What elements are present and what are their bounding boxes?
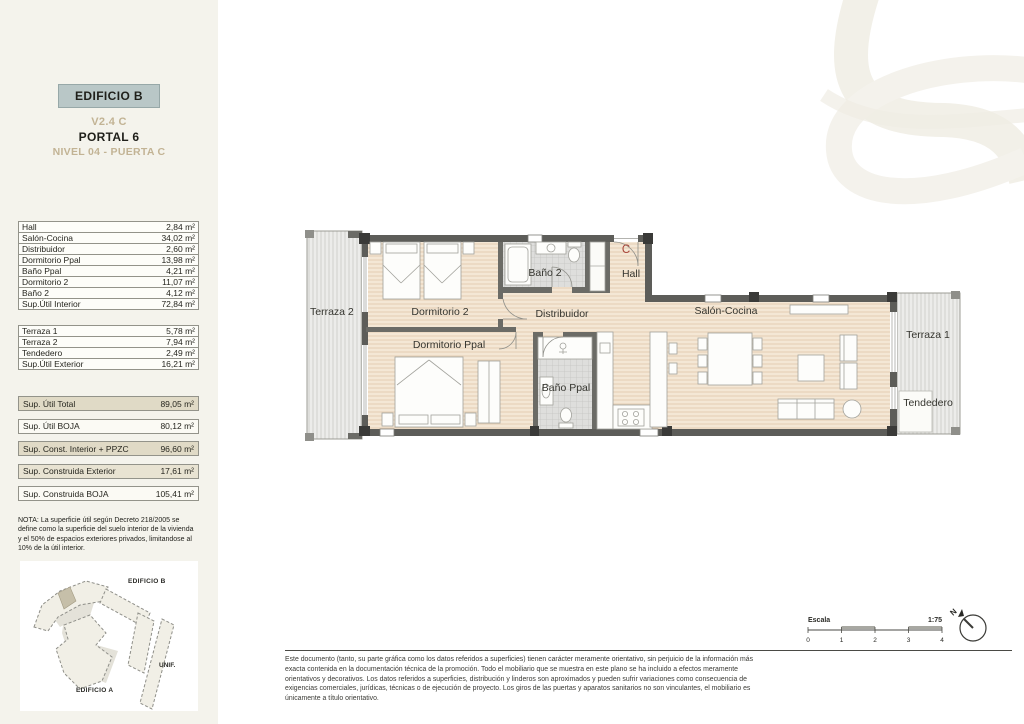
- scale-segment: [842, 626, 876, 629]
- sofa: [778, 399, 834, 419]
- row-label: Baño 2: [22, 288, 49, 299]
- disclaimer-block: Este documento (tanto, su parte gráfica …: [285, 650, 1012, 704]
- row-label: Dormitorio Ppal: [22, 255, 81, 266]
- tick-3: 3: [907, 637, 911, 644]
- summary-areas: Sup. Útil Total89,05 m² Sup. Útil BOJA80…: [18, 396, 199, 509]
- row-value: 96,60 m²: [160, 444, 194, 454]
- row-value: 17,61 m²: [160, 466, 194, 476]
- scale-bar-drawing: Escala 1:75 0 1 2 3 4 N: [795, 604, 1005, 650]
- row-value: 13,98 m²: [161, 255, 195, 266]
- row-label: Terraza 2: [22, 337, 57, 348]
- label-distribuidor: Distribuidor: [535, 308, 589, 320]
- exterior-areas-table: Terraza 15,78 m² Terraza 27,94 m² Tended…: [18, 325, 199, 370]
- unit-header: EDIFICIO B V2.4 C PORTAL 6 NIVEL 04 - PU…: [0, 84, 218, 158]
- summary-row: Sup. Construida Exterior17,61 m²: [18, 464, 199, 479]
- row-label: Sup. Construida Exterior: [23, 466, 116, 476]
- row-label: Salón-Cocina: [22, 233, 73, 244]
- dining-table: [708, 333, 752, 385]
- scale-segment: [909, 626, 943, 629]
- north-arrow-icon: N: [948, 607, 986, 641]
- label-hall: Hall: [622, 268, 640, 280]
- label-terraza1: Terraza 1: [906, 329, 950, 341]
- label-bano2: Baño 2: [528, 267, 561, 279]
- row-value: 89,05 m²: [160, 399, 194, 409]
- sideboard: [790, 305, 848, 314]
- decree-note: NOTA: La superficie útil según Decreto 2…: [18, 516, 196, 554]
- kitchen-island: [650, 332, 667, 427]
- tick-4: 4: [940, 637, 944, 644]
- table-row: Sup.Útil Interior72,84 m²: [18, 298, 199, 310]
- label-door-letter: C: [622, 244, 630, 256]
- row-value: 5,78 m²: [166, 326, 195, 337]
- site-plan: EDIFICIO B UNIF. EDIFICIO A: [20, 561, 198, 711]
- site-label-edificio-b: EDIFICIO B: [128, 578, 166, 585]
- tick-2: 2: [873, 637, 877, 644]
- row-value: 7,94 m²: [166, 337, 195, 348]
- label-terraza2: Terraza 2: [310, 306, 354, 318]
- scale-label: Escala: [808, 617, 830, 624]
- terraza-1-deck: [897, 291, 960, 435]
- row-label: Hall: [22, 222, 37, 233]
- tick-0: 0: [806, 637, 810, 644]
- row-value: 72,84 m²: [161, 299, 195, 310]
- portal-label: PORTAL 6: [0, 130, 218, 144]
- site-label-unif: UNIF.: [159, 662, 175, 669]
- interior-areas-table: Hall2,84 m² Salón-Cocina34,02 m² Distrib…: [18, 221, 199, 310]
- row-label: Terraza 1: [22, 326, 57, 337]
- coffee-table: [798, 355, 824, 381]
- row-label: Sup. Útil BOJA: [23, 421, 80, 431]
- summary-row: Sup. Const. Interior + PPZC96,60 m²: [18, 441, 199, 456]
- row-value: 4,21 m²: [166, 266, 195, 277]
- summary-row: Sup. Construida BOJA105,41 m²: [18, 486, 199, 501]
- row-value: 105,41 m²: [156, 489, 194, 499]
- row-label: Sup.Útil Interior: [22, 299, 81, 310]
- row-value: 2,49 m²: [166, 348, 195, 359]
- row-value: 11,07 m²: [162, 277, 195, 288]
- floorplan-sheet: EDIFICIO B V2.4 C PORTAL 6 NIVEL 04 - PU…: [0, 0, 1024, 724]
- row-value: 2,84 m²: [166, 222, 195, 233]
- building-badge: EDIFICIO B: [58, 84, 160, 108]
- row-label: Baño Ppal: [22, 266, 61, 277]
- table-row: Sup.Útil Exterior16,21 m²: [18, 358, 199, 370]
- decorative-swirl: [794, 0, 1024, 260]
- summary-row: Sup. Útil BOJA80,12 m²: [18, 419, 199, 434]
- terraza-2-deck: [305, 230, 362, 441]
- disclaimer-text: Este documento (tanto, su parte gráfica …: [285, 655, 766, 704]
- label-bano-ppal: Baño Ppal: [542, 382, 590, 394]
- tick-1: 1: [840, 637, 844, 644]
- hall-closet: [590, 242, 605, 291]
- scale-tick-labels: 0 1 2 3 4: [806, 637, 944, 644]
- label-dormitorio2: Dormitorio 2: [411, 306, 468, 318]
- row-label: Tendedero: [22, 348, 62, 359]
- row-label: Sup. Construida BOJA: [23, 489, 109, 499]
- level-door-label: NIVEL 04 - PUERTA C: [0, 146, 218, 158]
- row-label: Sup.Útil Exterior: [22, 359, 83, 370]
- dormitorio-ppal-furniture: [382, 357, 500, 427]
- floor-plan: Terraza 2 Dormitorio 2 Dormitorio Ppal B…: [300, 227, 962, 450]
- site-label-edificio-a: EDIFICIO A: [76, 687, 113, 694]
- row-label: Sup. Útil Total: [23, 399, 75, 409]
- north-arrowhead: [958, 609, 964, 617]
- row-label: Sup. Const. Interior + PPZC: [23, 444, 129, 454]
- row-value: 16,21 m²: [161, 359, 195, 370]
- side-table: [843, 400, 861, 418]
- stove: [618, 409, 644, 426]
- label-tendedero: Tendedero: [903, 397, 953, 409]
- row-value: 34,02 m²: [161, 233, 195, 244]
- row-value: 80,12 m²: [160, 421, 194, 431]
- row-label: Distribuidor: [22, 244, 65, 255]
- scale-ratio: 1:75: [928, 617, 942, 624]
- label-dormitorio-ppal: Dormitorio Ppal: [413, 339, 485, 351]
- label-salon: Salón-Cocina: [694, 305, 757, 317]
- row-label: Dormitorio 2: [22, 277, 68, 288]
- unit-code: V2.4 C: [0, 116, 218, 128]
- row-value: 2,60 m²: [166, 244, 195, 255]
- scale-and-north: Escala 1:75 0 1 2 3 4 N: [795, 604, 1005, 655]
- site-plan-drawing: EDIFICIO B UNIF. EDIFICIO A: [20, 561, 198, 711]
- floor-plan-drawing: Terraza 2 Dormitorio 2 Dormitorio Ppal B…: [300, 227, 962, 445]
- summary-row: Sup. Útil Total89,05 m²: [18, 396, 199, 411]
- disclaimer-rule: [285, 650, 1012, 651]
- north-letter: N: [948, 607, 958, 618]
- row-value: 4,12 m²: [166, 288, 195, 299]
